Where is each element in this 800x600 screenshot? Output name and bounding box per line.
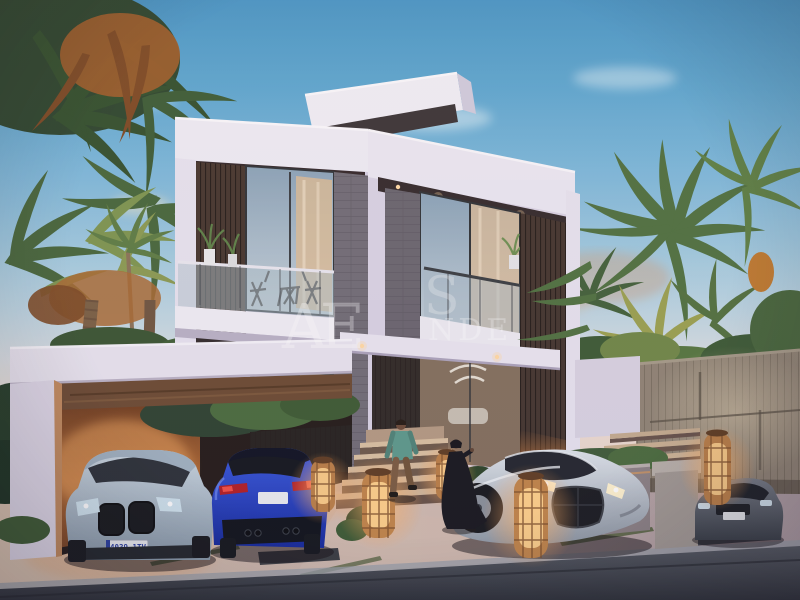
silver-coupe: 4039 1TV [64, 450, 216, 572]
scene-drawing: 4039 1TV [0, 0, 800, 600]
lantern [483, 464, 579, 568]
trousers [393, 460, 396, 493]
grille [99, 504, 124, 535]
watermark-fragment-bottom: NDE [428, 313, 512, 348]
lantern [679, 426, 755, 510]
villa-render-image: 4039 1TV [0, 0, 800, 600]
rear-plate [258, 492, 288, 504]
plate [723, 512, 745, 520]
date-fruit-cluster [748, 252, 774, 292]
watermark-main: AE [281, 290, 361, 363]
